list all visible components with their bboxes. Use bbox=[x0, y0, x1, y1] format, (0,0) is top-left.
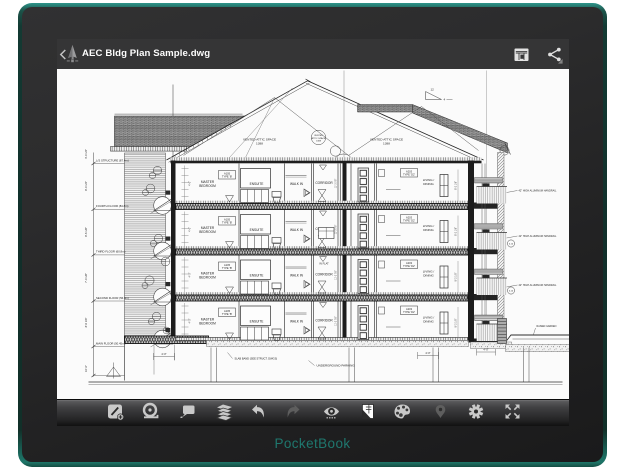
svg-text:WALK IN: WALK IN bbox=[290, 182, 304, 186]
svg-text:4'-0": 4'-0" bbox=[188, 318, 191, 323]
svg-text:11'-3 7/8": 11'-3 7/8" bbox=[335, 178, 337, 188]
svg-text:4'-0": 4'-0" bbox=[483, 347, 488, 351]
svg-text:1388: 1388 bbox=[256, 141, 263, 145]
svg-text:RAISED GARDEN: RAISED GARDEN bbox=[536, 325, 556, 328]
svg-text:TYPE 'B': TYPE 'B' bbox=[221, 220, 232, 224]
svg-text:7'-0 1/8": 7'-0 1/8" bbox=[84, 273, 88, 283]
svg-text:12: 12 bbox=[430, 87, 434, 91]
svg-text:DINING: DINING bbox=[423, 319, 434, 323]
svg-text:42" HIGH ALUMINUM HANDRAIL: 42" HIGH ALUMINUM HANDRAIL bbox=[518, 189, 556, 192]
svg-text:8'-2 1/8": 8'-2 1/8" bbox=[454, 318, 457, 327]
svg-text:11'-3 7/8": 11'-3 7/8" bbox=[335, 316, 337, 326]
svg-text:8'-6 1/8": 8'-6 1/8" bbox=[84, 317, 88, 327]
svg-text:TYPE 'D2': TYPE 'D2' bbox=[403, 264, 415, 268]
svg-text:8'-2 1/8": 8'-2 1/8" bbox=[454, 226, 457, 235]
svg-text:DINING: DINING bbox=[423, 273, 434, 277]
svg-text:5.10: 5.10 bbox=[508, 243, 513, 245]
svg-text:ENSUITE: ENSUITE bbox=[249, 273, 263, 277]
svg-text:CORRIDOR: CORRIDOR bbox=[315, 181, 333, 185]
svg-text:SECOND FLOOR (56.9m): SECOND FLOOR (56.9m) bbox=[96, 295, 129, 299]
svg-text:L/S STRUCTURE (87.4m): L/S STRUCTURE (87.4m) bbox=[96, 158, 129, 162]
svg-text:ENSUITE: ENSUITE bbox=[249, 228, 263, 232]
svg-text:BEDROOM: BEDROOM bbox=[199, 184, 216, 188]
svg-text:IN FLAT: IN FLAT bbox=[319, 261, 329, 265]
svg-text:TYPE 'B': TYPE 'B' bbox=[221, 174, 232, 178]
svg-text:BEDROOM: BEDROOM bbox=[199, 275, 216, 279]
svg-text:42" HIGH ALUMINUM HANDRAIL: 42" HIGH ALUMINUM HANDRAIL bbox=[518, 284, 556, 287]
svg-text:11'-3 7/8": 11'-3 7/8" bbox=[335, 224, 337, 234]
svg-text:11'-3 7/8": 11'-3 7/8" bbox=[335, 270, 337, 280]
svg-text:BEDROOM: BEDROOM bbox=[199, 321, 216, 325]
svg-text:TYPE 'B': TYPE 'B' bbox=[221, 266, 232, 270]
svg-text:WALK IN: WALK IN bbox=[290, 228, 304, 232]
svg-text:CORRIDOR: CORRIDOR bbox=[315, 272, 333, 276]
svg-text:ATTIC SPACE: ATTIC SPACE bbox=[311, 136, 326, 139]
svg-text:MAIN FLOOR (50.45m): MAIN FLOOR (50.45m) bbox=[96, 341, 125, 345]
svg-text:TYPE 'B': TYPE 'B' bbox=[221, 312, 232, 316]
svg-text:UNDERGROUND PARKING: UNDERGROUND PARKING bbox=[316, 363, 355, 367]
svg-text:DINING: DINING bbox=[423, 228, 434, 232]
svg-text:5.10: 5.10 bbox=[508, 290, 513, 292]
svg-text:TYPE 'D2': TYPE 'D2' bbox=[403, 218, 415, 222]
svg-text:1388: 1388 bbox=[383, 141, 390, 145]
svg-text:WALK IN: WALK IN bbox=[290, 273, 304, 277]
svg-text:DINING: DINING bbox=[423, 182, 434, 186]
svg-text:10'-0": 10'-0" bbox=[84, 365, 88, 372]
svg-text:A203: A203 bbox=[405, 215, 412, 219]
svg-text:4'-0": 4'-0" bbox=[188, 272, 191, 277]
svg-text:A105: A105 bbox=[223, 262, 230, 266]
svg-text:4'-0": 4'-0" bbox=[188, 226, 191, 231]
svg-text:8'-2 1/8": 8'-2 1/8" bbox=[454, 180, 457, 189]
svg-text:TYPE 'D2': TYPE 'D2' bbox=[403, 172, 415, 176]
svg-text:A203: A203 bbox=[405, 260, 412, 264]
svg-text:8'-0 1/4": 8'-0 1/4" bbox=[84, 181, 88, 191]
svg-text:A203: A203 bbox=[405, 169, 412, 173]
svg-text:CORRIDOR: CORRIDOR bbox=[315, 318, 333, 322]
svg-text:4'-0": 4'-0" bbox=[425, 351, 430, 355]
svg-text:SLAB BAND (SEE STRUCT. DWGS): SLAB BAND (SEE STRUCT. DWGS) bbox=[234, 356, 277, 360]
svg-text:ENSUITE: ENSUITE bbox=[249, 319, 263, 323]
svg-text:TYPE 'D2': TYPE 'D2' bbox=[403, 310, 415, 314]
svg-text:1388: 1388 bbox=[316, 140, 322, 142]
svg-text:4'-0": 4'-0" bbox=[188, 180, 191, 185]
svg-text:A105: A105 bbox=[223, 308, 230, 312]
svg-text:VENTED: VENTED bbox=[314, 135, 323, 137]
svg-text:8'-6 1/8": 8'-6 1/8" bbox=[84, 227, 88, 237]
svg-text:A105: A105 bbox=[223, 171, 230, 175]
svg-text:FOURTH FLOOR (84.8m): FOURTH FLOOR (84.8m) bbox=[96, 204, 128, 208]
svg-text:8'-2 1/8": 8'-2 1/8" bbox=[454, 272, 457, 281]
svg-text:WALK IN: WALK IN bbox=[290, 319, 304, 323]
svg-text:42" HIGH ALUMINUM HANDRAIL: 42" HIGH ALUMINUM HANDRAIL bbox=[518, 235, 556, 238]
svg-text:4'-0 1/4": 4'-0 1/4" bbox=[84, 149, 88, 159]
svg-text:A203: A203 bbox=[405, 306, 412, 310]
svg-text:THIRD FLOOR (60.8m): THIRD FLOOR (60.8m) bbox=[96, 249, 125, 253]
svg-text:4'-0": 4'-0" bbox=[161, 352, 166, 356]
svg-text:BEDROOM: BEDROOM bbox=[199, 230, 216, 234]
svg-text:A105: A105 bbox=[223, 217, 230, 221]
svg-text:ENSUITE: ENSUITE bbox=[249, 182, 263, 186]
svg-text:4: 4 bbox=[443, 97, 445, 101]
